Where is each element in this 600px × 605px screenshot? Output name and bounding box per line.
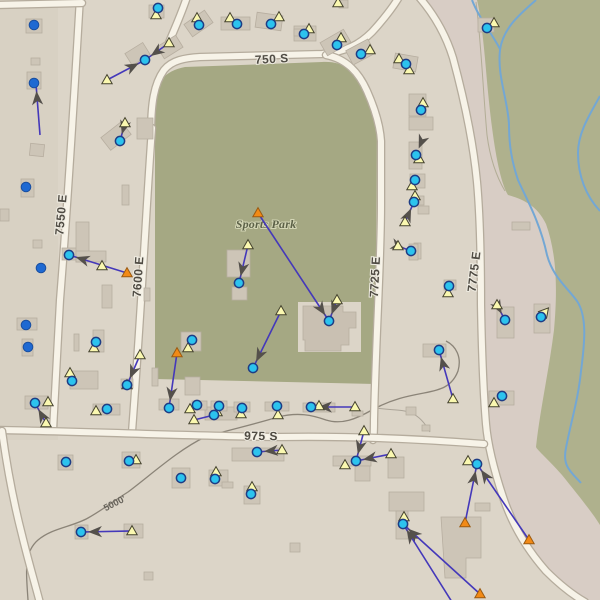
svg-text:7725 E: 7725 E: [367, 256, 383, 298]
svg-text:750 S: 750 S: [255, 51, 290, 67]
svg-text:975 S: 975 S: [244, 429, 278, 444]
